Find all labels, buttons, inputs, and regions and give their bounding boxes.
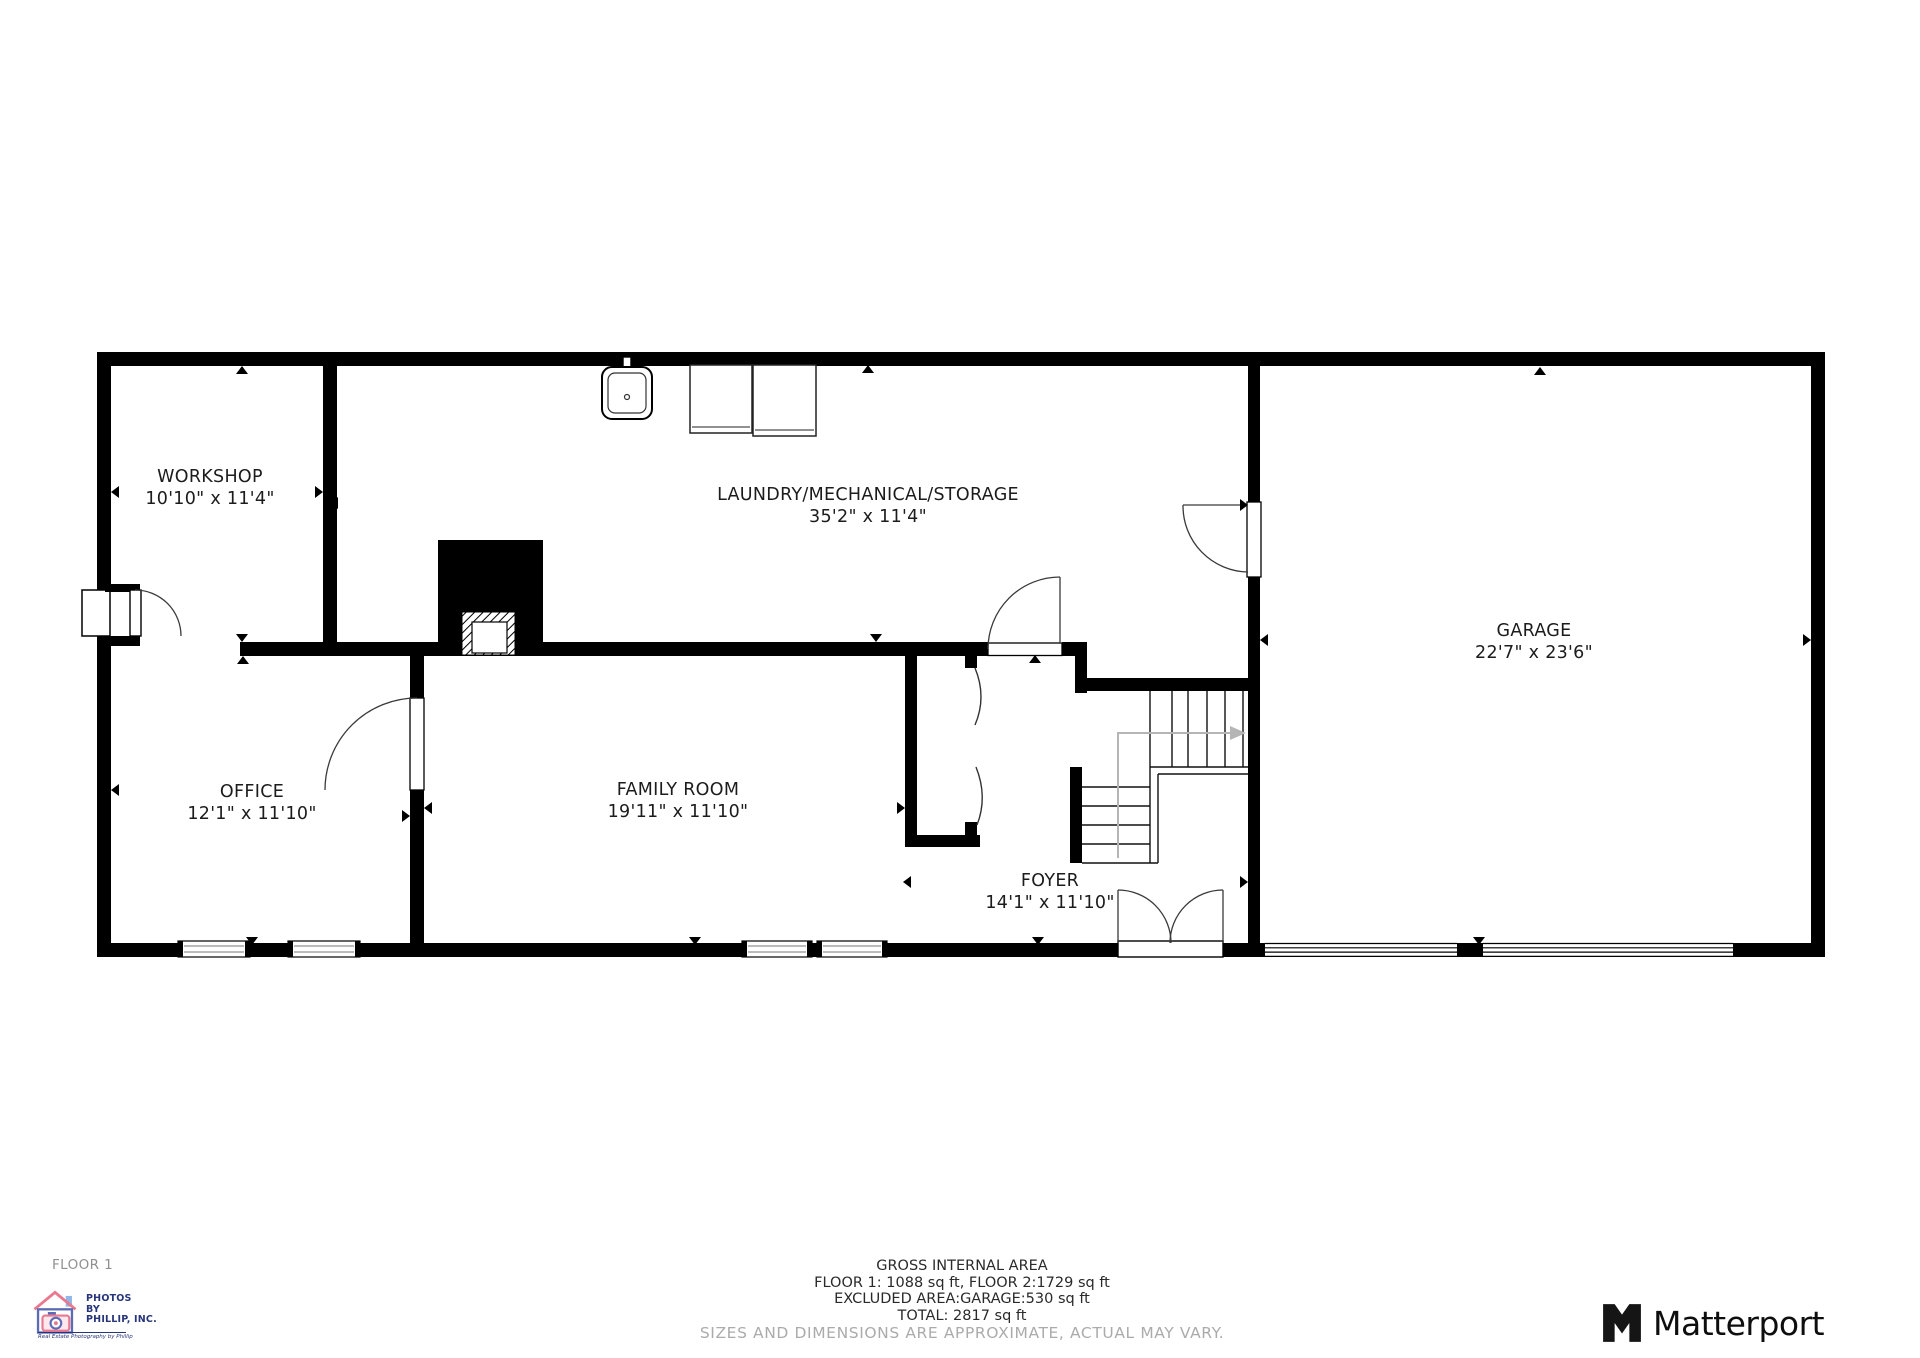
dimension-marker [315,486,323,498]
matterport-wordmark: Matterport [1653,1304,1824,1343]
floor-plan-canvas [0,0,1920,1358]
washer-icon [690,365,752,433]
door-leaf [130,590,141,636]
dimension-marker [862,365,874,373]
room-label-foyer: FOYER 14'1" x 11'10" [985,870,1114,914]
photographer-line: PHOTOS [86,1294,157,1305]
entry-double-door [1118,890,1223,943]
dimension-marker [402,810,410,822]
photographer-tagline: Real Estate Photography by Phillip [38,1332,126,1340]
dimension-marker [111,486,119,498]
room-label-laundry: LAUNDRY/MECHANICAL/STORAGE 35'2" x 11'4" [717,484,1019,528]
room-dims: 35'2" x 11'4" [717,506,1019,528]
photographer-logo-text: PHOTOS BY PHILLIP, INC. [86,1288,157,1326]
dimension-marker [1534,367,1546,375]
window [742,941,812,957]
room-dims: 12'1" x 11'10" [187,803,316,825]
floor-label: FLOOR 1 [52,1257,113,1273]
door-swing-arc [325,698,417,790]
room-label-office: OFFICE 12'1" x 11'10" [187,781,316,825]
summary-title: GROSS INTERNAL AREA [700,1258,1224,1275]
room-dims: 14'1" x 11'10" [985,892,1114,914]
room-label-workshop: WORKSHOP 10'10" x 11'4" [145,466,274,510]
dimension-marker [1803,634,1811,646]
door-swing-arc [1183,505,1248,572]
laundry-sink-icon [602,357,652,419]
dimension-marker [237,656,249,664]
room-name: FAMILY ROOM [608,779,749,801]
room-name: GARAGE [1475,620,1593,642]
photographer-line: PHILLIP, INC. [86,1315,157,1326]
dimension-marker [1260,634,1268,646]
window [817,941,887,957]
room-dims: 10'10" x 11'4" [145,488,274,510]
door-opening [1247,502,1261,577]
room-name: OFFICE [187,781,316,803]
staircase [1082,691,1248,863]
door-stoop [82,590,110,636]
photographer-logo: PHOTOS BY PHILLIP, INC. [30,1288,157,1336]
matterport-logo-icon [1601,1302,1643,1344]
dimension-marker [236,634,248,642]
garage-door [1483,941,1733,957]
dimension-marker [1029,655,1041,663]
matterport-logo: Matterport [1601,1302,1824,1344]
room-label-family-room: FAMILY ROOM 19'11" x 11'10" [608,779,749,823]
door-swing-arc [988,577,1060,649]
dimension-marker [897,802,905,814]
dryer-icon [753,365,816,436]
dimension-marker [870,634,882,642]
garage-door [1265,941,1457,957]
closet-fold-line [975,668,982,825]
floorplan-page: WORKSHOP 10'10" x 11'4" LAUNDRY/MECHANIC… [0,0,1920,1358]
dimension-marker [903,876,911,888]
window [288,941,360,957]
dimension-marker [111,784,119,796]
stair-direction-arrow [1118,726,1246,858]
door-opening [988,643,1062,656]
room-name: FOYER [985,870,1114,892]
dimension-marker [1240,876,1248,888]
dimension-marker [236,366,248,374]
entry-threshold [1118,941,1223,957]
room-name: WORKSHOP [145,466,274,488]
room-label-garage: GARAGE 22'7" x 23'6" [1475,620,1593,664]
summary-disclaimer: SIZES AND DIMENSIONS ARE APPROXIMATE, AC… [700,1325,1224,1342]
door-opening [410,698,424,790]
summary-excluded: EXCLUDED AREA:GARAGE:530 sq ft [700,1291,1224,1308]
room-name: LAUNDRY/MECHANICAL/STORAGE [717,484,1019,506]
room-dims: 19'11" x 11'10" [608,801,749,823]
summary-total: TOTAL: 2817 sq ft [700,1308,1224,1325]
dimension-marker [424,802,432,814]
window [178,941,250,957]
fireplace-icon [438,540,543,656]
door-swing-arc [135,590,181,636]
room-dims: 22'7" x 23'6" [1475,642,1593,664]
summary-floors: FLOOR 1: 1088 sq ft, FLOOR 2:1729 sq ft [700,1275,1224,1292]
photographer-logo-icon [30,1288,80,1336]
area-summary: GROSS INTERNAL AREA FLOOR 1: 1088 sq ft,… [700,1258,1224,1342]
